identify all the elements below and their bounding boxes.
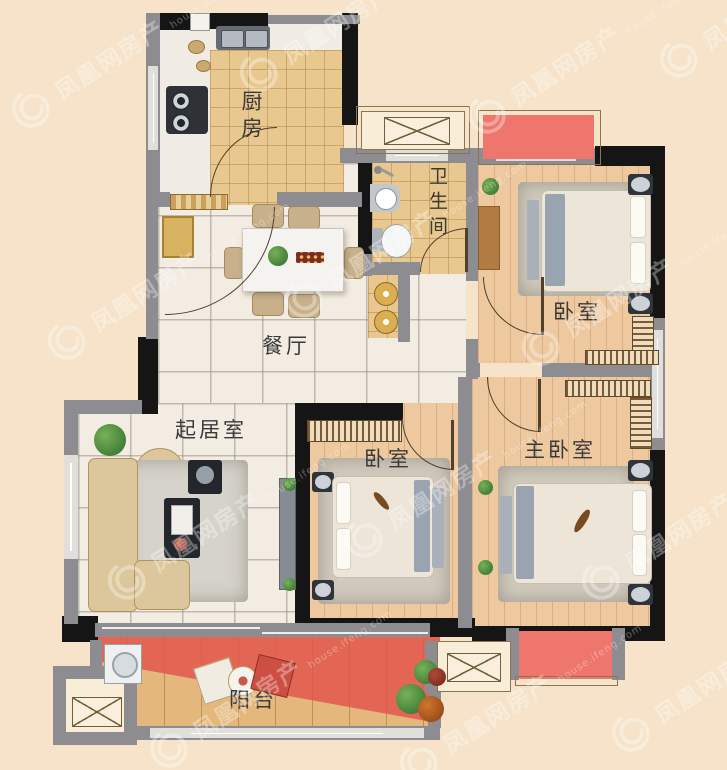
room-label-master: 主卧室 [524,434,596,464]
flower-decor [174,538,187,551]
toilet-bowl [381,224,412,258]
ac-platform-xbox [447,653,501,682]
washbasin [375,188,397,210]
bed-bench [500,496,512,574]
wall-segment [268,15,360,24]
sink-basin [245,30,268,48]
wall-segment [295,403,403,420]
bed-pillow [632,490,647,532]
wardrobe [307,420,402,442]
wardrobe [565,380,651,397]
tv-console [279,478,296,590]
sliding-door-line [262,632,428,634]
entry-door-arc [165,207,275,315]
balcony-plant [428,668,446,686]
washer-drum [112,652,138,678]
condiment-tray [296,252,324,263]
plant [482,178,499,195]
room-label-kitchen: 厨房 [236,90,266,144]
wall-segment [466,363,480,377]
laundry-basin [374,282,398,306]
plant [478,480,493,495]
sink-basin [221,30,244,48]
bed-runner [545,194,565,286]
wardrobe [630,397,652,449]
room-label-bedroom-middle: 卧室 [364,443,412,473]
plant [283,578,296,591]
bed-pillow [336,482,351,524]
wall-segment [612,628,625,680]
floor-plan-canvas: 厨房 卫生间 卧室 餐厅 起居室 卧室 主卧室 阳台 凤凰网房产house.if… [0,0,727,770]
plant [283,478,296,491]
flower-bed-outline [515,676,618,686]
wall-segment [64,400,142,414]
tray-decor [171,505,193,535]
wall-segment [146,192,170,207]
desk [478,206,500,270]
room-label-bedroom-top: 卧室 [553,296,601,326]
wall-segment [156,13,190,30]
wall-segment [277,192,362,207]
room-label-living: 起居室 [175,414,247,444]
nightstand [628,174,653,195]
wall-segment [295,420,310,630]
nightstand [312,580,334,600]
wall-segment [372,262,420,275]
bathroom-door-leaf [465,228,468,272]
balcony-window [150,728,424,738]
phoenix-spiral-icon [0,77,63,141]
nightstand [628,293,653,314]
bed-pillow [630,196,646,238]
kitchen-window [148,66,158,150]
bed-runner [414,480,430,572]
balcony-plant [418,696,444,722]
wall-segment [146,207,158,339]
sofa [88,458,138,612]
plate-decor [188,40,205,54]
dining-chair [344,247,364,279]
plant [478,560,493,575]
bed-runner [516,486,534,579]
wall-segment [595,146,665,166]
bed-pillow [630,242,646,284]
bed-pillow [632,534,647,576]
wall-segment [542,363,665,377]
room-label-balcony: 阳台 [229,684,277,714]
bowl-decor [196,466,214,484]
dining-chair [288,206,320,230]
nightstand [312,472,334,492]
master-door-arc [487,377,541,432]
living-room-window [64,455,78,559]
bedroom-top-door-arc [483,277,543,335]
kitchen-top-window [190,13,210,31]
laundry-basin [374,310,398,334]
flower-bed-platform [483,115,594,159]
ac-platform-xbox [384,117,450,145]
ac-platform-xbox [72,697,122,727]
bed-pillow [336,528,351,570]
bedroom-top-door-leaf [541,277,544,335]
plant [94,424,126,456]
wall-segment [458,377,472,628]
dining-chair [288,294,320,318]
nightstand [628,460,653,481]
plate-decor [196,60,211,72]
bed-bench [432,488,444,568]
master-door-leaf [538,379,541,432]
stove-burner [172,92,190,110]
watermark: 凤凰网房产house.ifeng.com [647,0,727,90]
flower-bed-platform [519,631,612,679]
wall-segment [95,623,430,637]
sliding-door-line [102,627,260,629]
sofa [134,560,190,610]
bedroom-middle-door-leaf [451,420,454,470]
dresser [632,316,654,354]
wall-segment [398,272,410,342]
stove-burner [172,114,190,132]
bed-bench [527,200,539,280]
wardrobe [585,350,659,365]
room-label-bathroom: 卫生间 [424,166,451,241]
nightstand [628,584,653,605]
room-label-dining: 餐厅 [262,330,310,360]
